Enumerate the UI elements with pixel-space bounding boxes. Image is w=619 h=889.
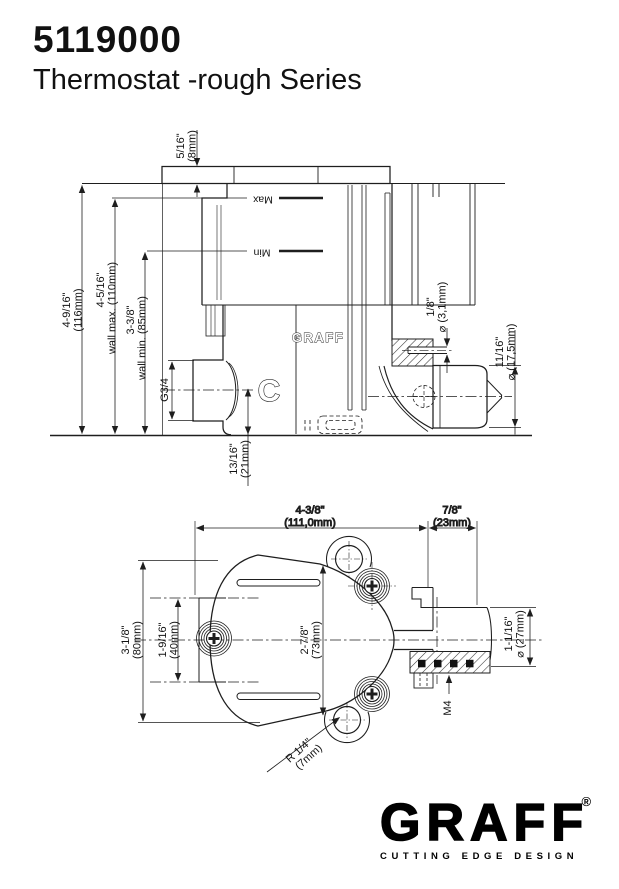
threaded-boss-section: [392, 339, 453, 366]
dim-overall-height: 4-9/16" (116mm): [61, 186, 85, 434]
dim-body-width-in: 4-3/8": [296, 505, 325, 517]
dim-mount-spacing-mm: (40mm): [169, 621, 181, 659]
dim-outlet-drop-in: 13/16": [228, 443, 240, 475]
dim-outlet-drop: 13/16" (21mm): [228, 389, 252, 486]
dim-body-width-mm: (111,0mm): [284, 517, 336, 529]
screw-boss-top: [348, 562, 396, 610]
dim-extension-mm: (23mm): [433, 517, 471, 529]
dim-inlet-thread: G3/4: [159, 361, 194, 421]
dim-outlet-dia-mm: ⌀ (27mm): [515, 610, 527, 658]
dim-wall-min-in: 3-3/8": [125, 305, 137, 334]
callout-screw-thread: M4: [442, 676, 454, 716]
dim-mount-spacing-in: 1-9/16": [157, 622, 169, 657]
brand-logo: GRAFF® CUTTING EDGE DESIGN: [380, 797, 595, 862]
plan-slot-bottom: [237, 693, 320, 700]
technical-drawing-canvas: Max Min GRAFF C 4-9/16" (116mm) 4-5/16": [0, 0, 619, 889]
registered-trademark-icon: ®: [582, 795, 598, 808]
cartridge-stem: [368, 366, 512, 429]
dim-outlet-dia: 1-1/16" ⌀ (27mm): [490, 608, 536, 667]
dim-body-height: 3-1/8" (80mm): [120, 561, 260, 723]
dim-body-height-mm: (80mm): [132, 621, 144, 659]
screw-boss-bottom: [355, 677, 390, 712]
dim-wall-max: 4-5/16" wall max. (110mm): [95, 200, 119, 434]
brand-logo-text: GRAFF: [380, 794, 589, 852]
spec-sheet: 5119000 Thermostat -rough Series: [0, 0, 619, 889]
callout-corner-radius: R 1/4" (7mm): [267, 718, 340, 774]
max-label: Max: [252, 194, 273, 206]
dim-wall-min-note: wall min. (85mm): [137, 296, 149, 381]
plan-slot-top: [237, 580, 320, 587]
brand-tagline: CUTTING EDGE DESIGN: [380, 851, 595, 862]
plan-view-drawing: 4-3/8" (111,0mm) 7/8" (23mm) 3-1/8" (80m…: [120, 505, 542, 774]
dim-body-depth-mm: (73mm): [311, 621, 323, 659]
dim-overall-height-in: 4-9/16": [61, 292, 73, 327]
dim-inlet-thread-label: G3/4: [159, 378, 171, 402]
dim-overall-height-mm: (116mm): [73, 288, 85, 331]
callout-screw-thread-label: M4: [442, 700, 454, 715]
brand-logo-wordmark: GRAFF®: [380, 797, 589, 849]
dim-cap-depth: 5/16" (8mm): [175, 130, 199, 197]
inlet-funnel: [164, 361, 254, 420]
dim-body-height-in: 3-1/8": [120, 625, 132, 654]
screw-boss-left: [197, 621, 232, 656]
dim-extension-in: 7/8": [442, 505, 461, 517]
dim-mount-spacing: 1-9/16" (40mm): [157, 600, 181, 681]
cold-indicator-label: C: [258, 373, 280, 408]
dim-wall-max-in: 4-5/16": [95, 272, 107, 307]
dim-cartridge-dia: 11/16" ⌀ (17,5mm): [489, 324, 521, 435]
ear-lug-top: [327, 536, 372, 577]
hidden-outlet-detail: [305, 416, 362, 434]
dim-cartridge-in: 11/16": [494, 337, 506, 368]
dim-cap-depth-mm: (8mm): [187, 130, 199, 162]
min-label: Min: [253, 247, 270, 259]
dim-outlet-drop-mm: (21mm): [240, 440, 252, 478]
dim-cartridge-mm: ⌀ (17,5mm): [506, 324, 518, 381]
dim-cap-depth-in: 5/16": [175, 133, 187, 158]
trim-cap: [162, 167, 390, 184]
ear-lug-bottom: [325, 702, 370, 743]
dim-wall-max-note: wall max. (110mm): [107, 262, 119, 355]
dim-wall-min: 3-3/8" wall min. (85mm): [125, 253, 149, 434]
dim-pilot-hole-in: 1/8": [425, 297, 437, 316]
side-view-drawing: Max Min GRAFF C 4-9/16" (116mm) 4-5/16": [50, 130, 532, 486]
brand-emboss-label: GRAFF: [292, 330, 344, 345]
dim-outlet-dia-in: 1-1/16": [503, 616, 515, 651]
dim-pilot-hole-mm: ⌀ (3,1mm): [437, 282, 449, 333]
dim-body-depth-in: 2-7/8": [299, 625, 311, 654]
